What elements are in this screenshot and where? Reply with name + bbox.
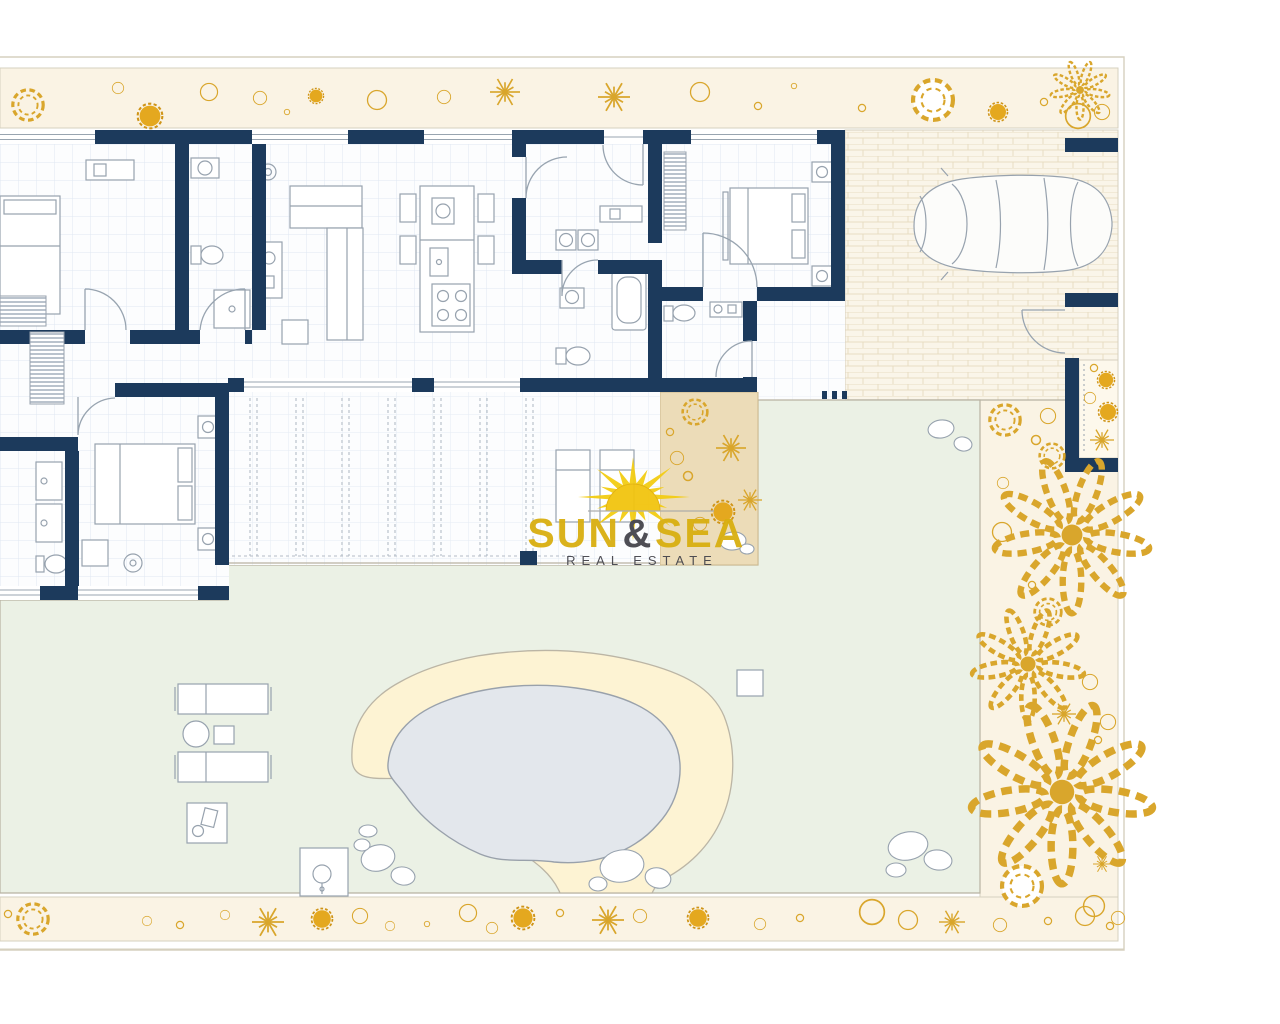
sink <box>710 302 742 317</box>
bench <box>82 540 108 566</box>
toilet <box>36 556 44 572</box>
side-table <box>282 320 308 344</box>
desk <box>86 160 134 180</box>
wardrobe <box>0 296 46 326</box>
sun-lounger <box>175 684 271 714</box>
wardrobe <box>664 152 686 230</box>
entrance-opening <box>604 130 643 144</box>
garden-stool <box>214 726 234 744</box>
sink <box>36 462 62 500</box>
sliding-glass-door <box>434 378 520 392</box>
chair <box>400 194 416 222</box>
garden-utility-box <box>737 670 763 696</box>
logo-word-sea: SEA <box>655 510 745 556</box>
window <box>0 586 40 600</box>
nightstand <box>812 266 832 286</box>
floor-plan-page: SUN & SEA REAL ESTATE <box>0 0 1280 1024</box>
outdoor-shower <box>300 848 348 896</box>
garden-side-table <box>183 721 209 747</box>
toilet <box>556 348 566 364</box>
window <box>691 130 817 144</box>
chair <box>478 236 494 264</box>
counter <box>600 206 642 222</box>
wardrobe <box>30 332 64 404</box>
logo-word-sun: SUN <box>527 510 620 556</box>
bushw-plant-icon <box>913 80 953 120</box>
sink <box>36 504 62 542</box>
bushw-plant-icon <box>1002 866 1042 906</box>
kitchen-island <box>420 186 474 332</box>
toilet <box>664 306 673 321</box>
chair <box>478 194 494 222</box>
bathroom3-fixtures <box>36 462 67 573</box>
sofa <box>290 186 362 228</box>
sliding-glass-door <box>244 378 412 392</box>
bed <box>730 188 808 264</box>
toilet <box>191 246 201 264</box>
window <box>78 586 198 600</box>
logo-ampersand: & <box>623 512 652 556</box>
bed <box>95 444 195 524</box>
window <box>0 130 95 144</box>
garden-play-table <box>187 803 227 843</box>
chair <box>400 236 416 264</box>
nightstand <box>812 162 832 182</box>
window <box>252 130 348 144</box>
window <box>424 130 512 144</box>
car <box>914 168 1112 280</box>
logo-subtitle: REAL ESTATE <box>566 553 718 568</box>
floor-plan-svg: SUN & SEA REAL ESTATE <box>0 0 1280 1024</box>
sun-lounger <box>175 752 271 782</box>
